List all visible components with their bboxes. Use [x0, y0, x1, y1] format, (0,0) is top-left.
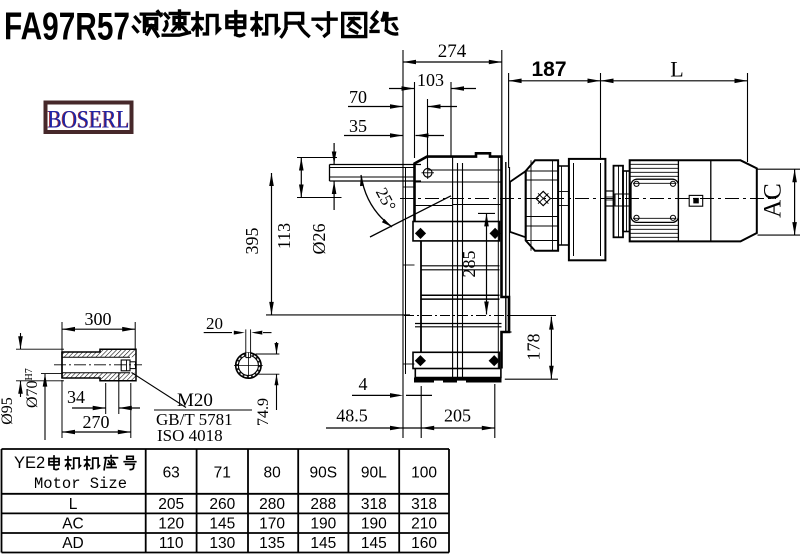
svg-text:80: 80	[263, 465, 281, 482]
svg-text:187: 187	[531, 58, 566, 81]
svg-text:210: 210	[411, 516, 437, 533]
svg-text:AC: AC	[760, 183, 787, 218]
svg-text:300: 300	[85, 309, 112, 329]
svg-text:FA97R57: FA97R57	[4, 6, 130, 49]
svg-text:395: 395	[242, 228, 262, 255]
svg-text:L: L	[670, 57, 683, 82]
svg-text:270: 270	[83, 412, 110, 432]
svg-text:Ø26: Ø26	[309, 224, 329, 255]
svg-text:205: 205	[444, 406, 471, 426]
svg-text:4: 4	[359, 374, 368, 394]
svg-text:113: 113	[274, 223, 294, 249]
svg-text:ISO 4018: ISO 4018	[157, 426, 223, 445]
svg-text:274: 274	[438, 41, 467, 62]
svg-text:100: 100	[411, 465, 437, 482]
svg-text:L: L	[69, 496, 78, 513]
svg-text:34: 34	[67, 387, 85, 407]
svg-text:YE2: YE2	[14, 454, 45, 472]
svg-text:70: 70	[349, 87, 367, 107]
svg-text:35: 35	[349, 116, 367, 136]
svg-text:90L: 90L	[361, 465, 387, 482]
svg-text:145: 145	[361, 535, 387, 552]
svg-text:130: 130	[209, 535, 235, 552]
svg-text:145: 145	[209, 516, 235, 533]
svg-text:BOSERL: BOSERL	[48, 107, 130, 134]
svg-text:63: 63	[163, 465, 180, 482]
svg-text:170: 170	[259, 516, 285, 533]
svg-text:AC: AC	[62, 516, 84, 533]
svg-text:318: 318	[411, 496, 437, 513]
svg-text:20: 20	[206, 314, 223, 333]
svg-text:74.9: 74.9	[255, 398, 272, 426]
svg-text:318: 318	[361, 496, 387, 513]
svg-text:160: 160	[411, 535, 437, 552]
svg-text:280: 280	[259, 496, 285, 513]
svg-text:48.5: 48.5	[336, 406, 368, 426]
svg-text:135: 135	[259, 535, 285, 552]
svg-text:90S: 90S	[310, 465, 338, 482]
svg-text:120: 120	[158, 516, 184, 533]
svg-text:190: 190	[361, 516, 387, 533]
svg-text:190: 190	[310, 516, 336, 533]
svg-text:260: 260	[209, 496, 235, 513]
svg-text:AD: AD	[62, 535, 84, 552]
svg-text:110: 110	[159, 535, 184, 552]
svg-text:103: 103	[417, 70, 444, 90]
svg-text:145: 145	[310, 535, 336, 552]
svg-text:285: 285	[459, 251, 479, 278]
svg-text:205: 205	[158, 496, 184, 513]
svg-text:M20: M20	[177, 390, 213, 411]
svg-text:71: 71	[214, 465, 231, 482]
svg-text:Motor Size: Motor Size	[34, 475, 127, 493]
svg-text:178: 178	[524, 334, 544, 361]
svg-text:Ø95: Ø95	[0, 397, 16, 425]
svg-text:288: 288	[310, 496, 336, 513]
